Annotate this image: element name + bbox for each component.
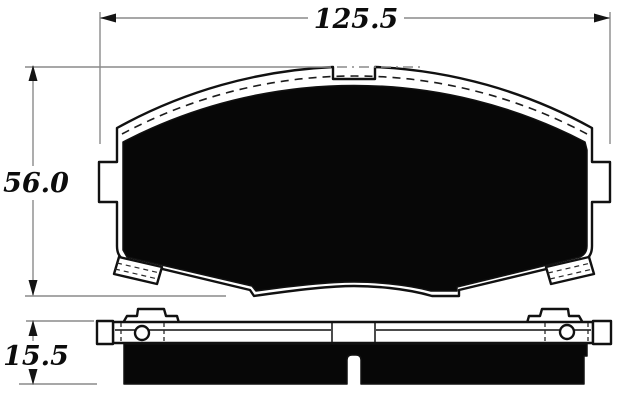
thickness-dimension-value: 15.5: [3, 341, 69, 372]
friction-material-side: [124, 344, 587, 384]
arrowhead-right-icon: [594, 14, 610, 23]
rivet-hole-left: [135, 326, 149, 340]
friction-material-front: [123, 85, 587, 291]
rivet-hole-right: [560, 325, 574, 339]
arrowhead-down-icon: [29, 280, 38, 296]
arrowhead-left-icon: [100, 14, 116, 23]
height-dimension-value: 56.0: [3, 168, 69, 199]
width-dimension-value: 125.5: [314, 4, 399, 35]
pad-side-view: [97, 309, 611, 384]
arrowhead-up-icon: [29, 320, 38, 336]
technical-drawing: 125.5 56.0 15.5: [0, 0, 630, 400]
backing-plate-side: [113, 322, 593, 343]
backing-plate-right-end: [593, 321, 611, 344]
pad-front-view: [99, 67, 610, 296]
backing-plate-left-end: [97, 321, 113, 344]
drawing-canvas: 125.5 56.0 15.5: [0, 0, 630, 400]
thickness-dimension: 15.5: [3, 320, 97, 385]
